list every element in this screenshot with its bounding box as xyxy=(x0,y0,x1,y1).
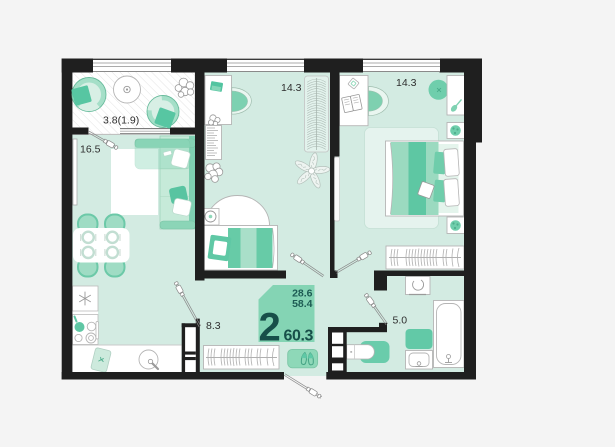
svg-text:3.8(1.9): 3.8(1.9) xyxy=(103,115,139,127)
svg-text:60.3: 60.3 xyxy=(284,328,314,345)
svg-text:8.3: 8.3 xyxy=(206,320,221,332)
svg-text:58.4: 58.4 xyxy=(292,298,313,310)
svg-text:14.3: 14.3 xyxy=(281,82,302,94)
svg-text:5.0: 5.0 xyxy=(393,315,408,327)
svg-text:16.5: 16.5 xyxy=(80,144,101,156)
svg-text:14.3: 14.3 xyxy=(396,77,417,89)
svg-text:2: 2 xyxy=(259,306,281,350)
